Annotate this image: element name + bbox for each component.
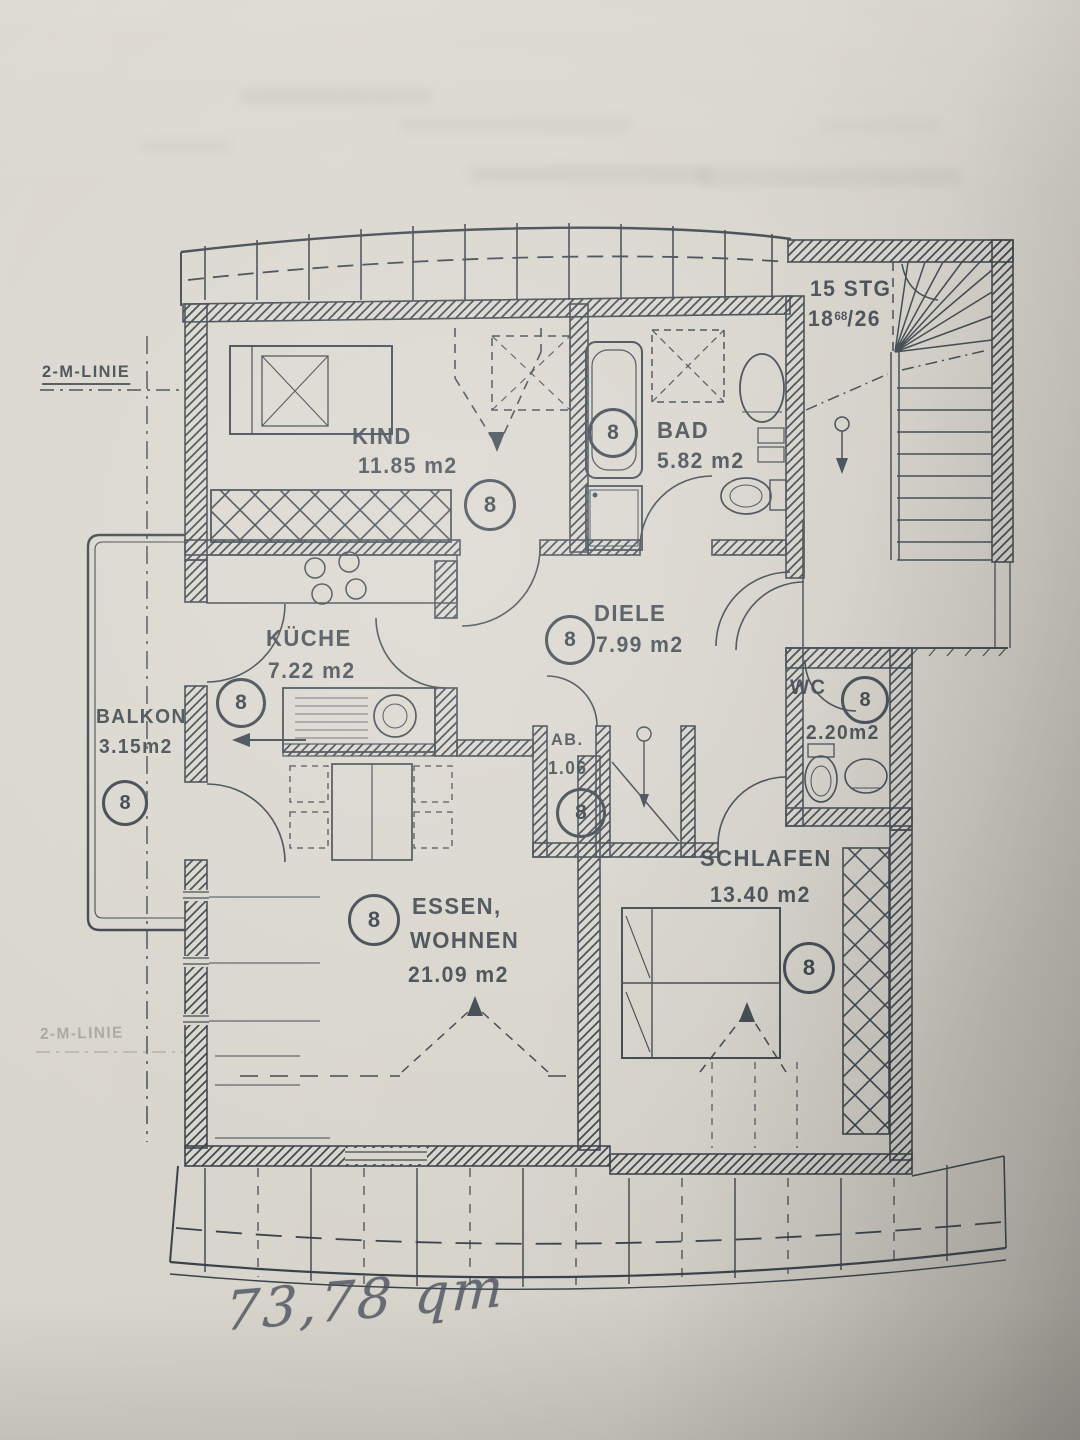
room-area-diele: 7.99 m2 (596, 632, 684, 658)
room-label-ab: AB. (551, 730, 583, 750)
roof-band-bottom (170, 1156, 1006, 1289)
room-label-essen: ESSEN, (412, 893, 502, 920)
room-label-kueche: KÜCHE (266, 625, 352, 652)
unit-badge-kind: 8 (464, 479, 516, 531)
room-label-wohnen: WOHNEN (410, 927, 519, 954)
duct-shaft (612, 727, 679, 841)
roof-band-top (181, 223, 791, 306)
room-label-kind: KIND (352, 423, 412, 450)
stairs-riser-label: 1868/26 (808, 306, 881, 332)
unit-badge-kueche: 8 (216, 678, 266, 728)
stairs-riser-value: 18 (808, 306, 834, 331)
room-area-essen-wohnen: 21.09 m2 (408, 962, 509, 988)
room-area-kind: 11.85 m2 (358, 453, 458, 479)
room-area-kueche: 7.22 m2 (268, 658, 356, 684)
unit-badge-bad: 8 (588, 408, 638, 458)
stairs-steps-label: 15 STG (810, 276, 891, 302)
room-area-ab: 1.06 (548, 758, 587, 779)
reference-line-label: 2-M-LINIE (42, 362, 130, 385)
unit-badge-schlafen: 8 (783, 942, 835, 994)
balcony-railing (88, 535, 185, 930)
room-area-balkon: 3.15m2 (99, 736, 173, 759)
unit-badge-balkon: 8 (102, 780, 148, 826)
wc-furniture (805, 744, 887, 802)
room-label-diele: DIELE (594, 600, 666, 627)
reference-line-label-lower: 2-M-LINIE (40, 1025, 124, 1044)
room-label-balkon: BALKON (96, 706, 187, 729)
room-area-bad: 5.82 m2 (657, 448, 745, 474)
room-label-schlafen: SCHLAFEN (700, 845, 832, 872)
living-furniture (215, 764, 576, 1138)
room-label-bad: BAD (657, 417, 709, 444)
unit-badge-ab: 8 (556, 788, 606, 838)
unit-badge-essen-wohnen: 8 (348, 894, 400, 946)
room-label-wc: WC (790, 676, 826, 700)
scanned-floor-plan-page: 2-M-LINIE 2-M-LINIE 15 STG 1868/26 KIND … (0, 0, 1080, 1440)
stairs-riser-rest: /26 (847, 306, 881, 331)
room-area-schlafen: 13.40 m2 (710, 882, 811, 908)
stairs-riser-sup: 68 (834, 309, 847, 323)
unit-badge-wc: 8 (841, 676, 889, 724)
unit-badge-diele: 8 (545, 615, 595, 665)
room-area-wc: 2.20m2 (806, 722, 880, 745)
